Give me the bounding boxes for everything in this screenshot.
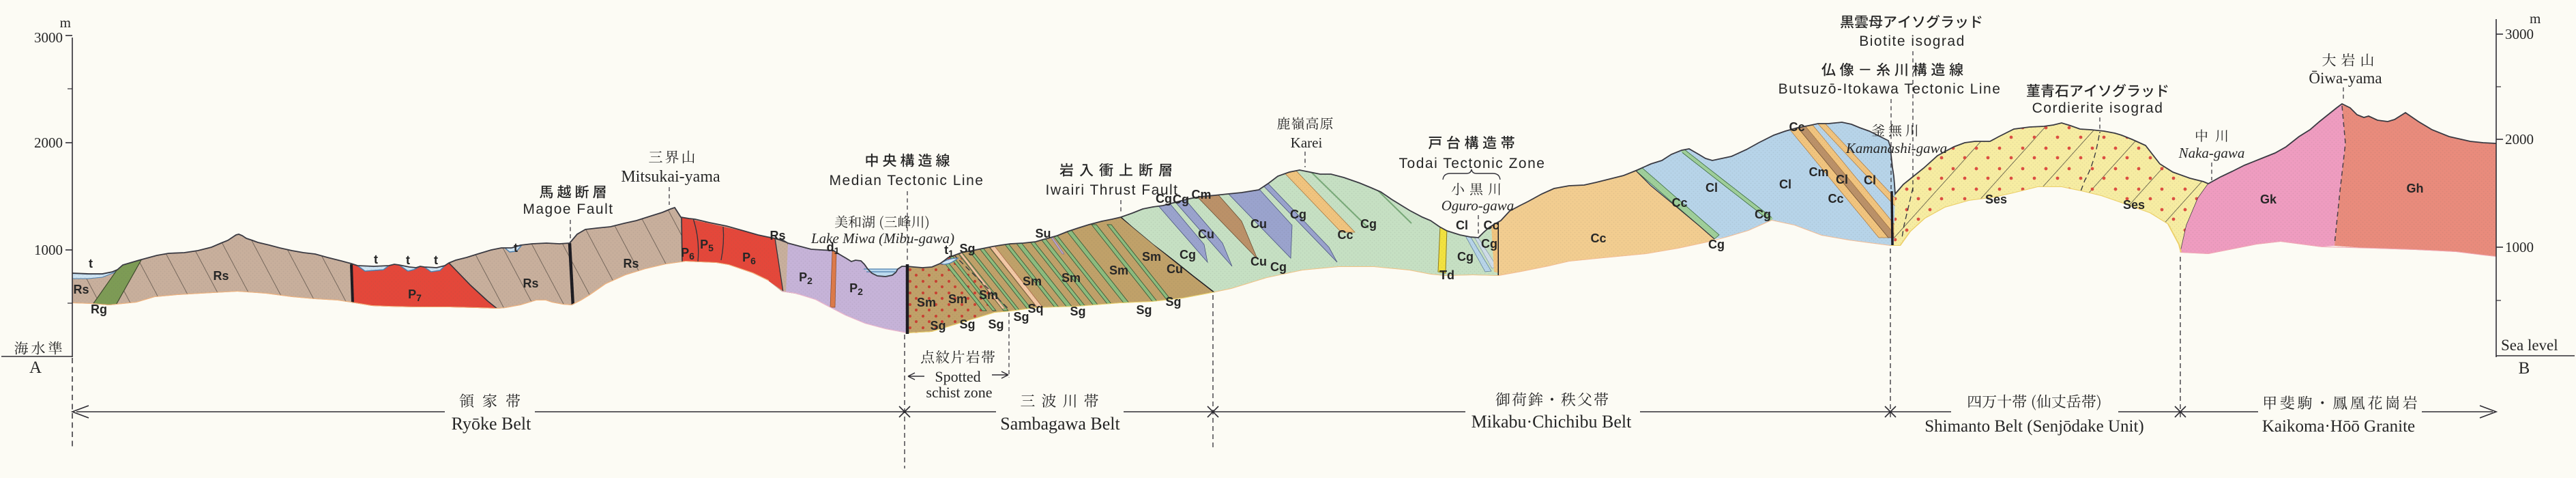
svg-text:t: t — [434, 253, 438, 267]
svg-text:Cu: Cu — [1167, 262, 1183, 276]
svg-text:t: t — [406, 253, 410, 267]
svg-text:Sg: Sg — [1165, 295, 1181, 309]
svg-text:Cc: Cc — [1483, 219, 1499, 232]
svg-text:Cc: Cc — [1828, 192, 1843, 206]
svg-text:Sm: Sm — [979, 288, 998, 302]
svg-text:Cg: Cg — [1290, 208, 1306, 221]
svg-text:Sm: Sm — [1109, 264, 1128, 277]
svg-text:Cc: Cc — [1337, 228, 1353, 242]
svg-text:2000: 2000 — [34, 135, 63, 151]
svg-text:Sm: Sm — [1023, 275, 1042, 288]
svg-text:Sg: Sg — [1070, 305, 1085, 318]
svg-text:Sg: Sg — [959, 318, 975, 331]
svg-text:schist zone: schist zone — [926, 384, 992, 401]
svg-text:Butsuzō-Itokawa Tectonic Line: Butsuzō-Itokawa Tectonic Line — [1779, 81, 2002, 97]
svg-text:t: t — [374, 253, 378, 266]
svg-text:Ses: Ses — [2123, 198, 2145, 212]
svg-text:Median Tectonic Line: Median Tectonic Line — [830, 173, 984, 188]
svg-text:Cordierite isograd: Cordierite isograd — [2032, 100, 2164, 116]
svg-text:Cm: Cm — [1809, 165, 1828, 179]
svg-text:Cu: Cu — [1250, 255, 1267, 268]
svg-text:Gk: Gk — [2260, 193, 2277, 206]
svg-text:Cl: Cl — [1456, 219, 1468, 232]
svg-text:Cg: Cg — [1755, 208, 1771, 221]
svg-text:Oguro-gawa: Oguro-gawa — [1441, 197, 1514, 214]
svg-text:Cl: Cl — [1836, 173, 1848, 186]
svg-text:Sea level: Sea level — [2501, 337, 2558, 354]
svg-text:Sm: Sm — [1142, 250, 1161, 264]
svg-text:Magoe Fault: Magoe Fault — [523, 201, 613, 217]
svg-text:Cg: Cg — [1360, 217, 1377, 231]
svg-text:Naka-gawa: Naka-gawa — [2178, 145, 2245, 161]
svg-text:Rs: Rs — [213, 269, 229, 283]
svg-text:Cg: Cg — [1173, 193, 1189, 206]
svg-text:m: m — [2530, 10, 2541, 27]
svg-text:Su: Su — [1035, 227, 1051, 240]
svg-text:m: m — [60, 14, 71, 31]
svg-text:Cg: Cg — [1708, 238, 1725, 251]
svg-text:Sg: Sg — [930, 319, 946, 333]
svg-text:Kaikoma·Hōō Granite: Kaikoma·Hōō Granite — [2262, 417, 2415, 436]
svg-text:1000: 1000 — [2505, 239, 2534, 255]
svg-text:Cl: Cl — [1779, 178, 1791, 191]
svg-text:Ryōke Belt: Ryōke Belt — [452, 414, 531, 434]
svg-text:Cc: Cc — [1671, 196, 1687, 210]
svg-text:Cl: Cl — [1864, 173, 1876, 187]
svg-text:Sm: Sm — [1062, 271, 1081, 285]
svg-text:Cc: Cc — [1590, 231, 1606, 245]
svg-text:Sm: Sm — [948, 292, 967, 306]
svg-text:Cg: Cg — [1457, 250, 1474, 264]
svg-text:Gh: Gh — [2407, 182, 2424, 195]
svg-text:Cm: Cm — [1191, 188, 1211, 201]
svg-text:Cc: Cc — [1789, 120, 1804, 134]
svg-text:Sg: Sg — [988, 318, 1004, 331]
svg-text:Mikabu·Chichibu Belt: Mikabu·Chichibu Belt — [1472, 412, 1632, 432]
svg-text:Cg: Cg — [1180, 248, 1196, 262]
svg-text:A: A — [29, 358, 42, 377]
svg-text:1000: 1000 — [34, 242, 63, 258]
svg-text:Cg: Cg — [1156, 192, 1172, 206]
svg-text:Sg: Sg — [1136, 303, 1152, 317]
svg-text:Todai Tectonic Zone: Todai Tectonic Zone — [1399, 156, 1546, 171]
svg-text:Rs: Rs — [623, 257, 639, 270]
svg-text:Sm: Sm — [917, 296, 936, 309]
svg-text:B: B — [2519, 359, 2530, 378]
svg-text:Karei: Karei — [1291, 135, 1323, 151]
svg-text:3000: 3000 — [2505, 26, 2534, 42]
svg-text:Spotted: Spotted — [935, 368, 980, 385]
svg-text:Rs: Rs — [73, 283, 89, 296]
svg-text:t: t — [89, 257, 93, 270]
svg-text:Rs: Rs — [523, 277, 538, 290]
svg-text:Rg: Rg — [91, 303, 107, 316]
svg-text:Shimanto Belt (Senjōdake Unit): Shimanto Belt (Senjōdake Unit) — [1924, 417, 2143, 436]
svg-text:3000: 3000 — [34, 29, 63, 46]
svg-text:Ses: Ses — [1985, 193, 2007, 206]
svg-text:Cl: Cl — [1706, 181, 1718, 195]
svg-text:Ōiwa-yama: Ōiwa-yama — [2309, 70, 2382, 87]
svg-text:Sq: Sq — [1027, 302, 1043, 315]
svg-text:Cg: Cg — [1270, 260, 1287, 274]
svg-text:Sg: Sg — [1013, 310, 1029, 324]
svg-text:Rs: Rs — [770, 229, 785, 242]
svg-text:t: t — [514, 241, 518, 255]
svg-text:Cu: Cu — [1198, 227, 1214, 241]
svg-text:2000: 2000 — [2505, 131, 2534, 147]
svg-text:Cu: Cu — [1250, 217, 1267, 231]
svg-text:Td: Td — [1439, 268, 1454, 282]
svg-text:Biotite isograd: Biotite isograd — [1859, 33, 1965, 49]
svg-text:Sambagawa Belt: Sambagawa Belt — [1000, 414, 1120, 434]
svg-text:Mitsukai-yama: Mitsukai-yama — [621, 168, 720, 186]
svg-text:Kamanashi-gawa: Kamanashi-gawa — [1845, 140, 1947, 156]
svg-text:Cg: Cg — [1481, 237, 1497, 251]
svg-text:Sg: Sg — [959, 242, 975, 255]
